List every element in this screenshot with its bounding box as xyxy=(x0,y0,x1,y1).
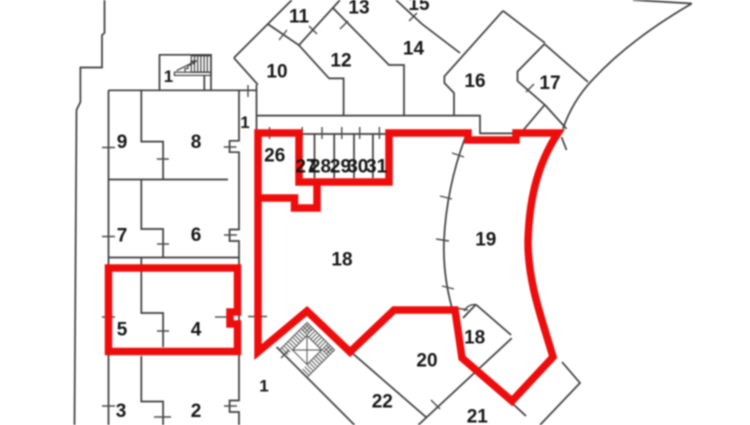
svg-text:26: 26 xyxy=(264,146,285,167)
svg-text:14: 14 xyxy=(403,39,425,60)
svg-text:8: 8 xyxy=(191,132,202,153)
svg-text:4: 4 xyxy=(191,320,202,341)
svg-text:20: 20 xyxy=(416,351,437,372)
svg-text:16: 16 xyxy=(464,71,485,92)
svg-text:1: 1 xyxy=(259,377,268,396)
svg-text:5: 5 xyxy=(117,320,128,341)
svg-text:1: 1 xyxy=(240,113,249,132)
svg-text:2: 2 xyxy=(191,401,202,422)
svg-text:12: 12 xyxy=(330,50,351,71)
svg-text:7: 7 xyxy=(117,226,128,247)
svg-text:9: 9 xyxy=(117,132,128,153)
svg-text:18: 18 xyxy=(331,250,352,271)
svg-text:10: 10 xyxy=(266,62,287,83)
svg-text:28: 28 xyxy=(310,157,331,178)
svg-text:13: 13 xyxy=(348,0,369,19)
svg-text:17: 17 xyxy=(539,73,560,94)
svg-text:6: 6 xyxy=(191,225,202,246)
svg-text:31: 31 xyxy=(366,157,388,178)
svg-text:21: 21 xyxy=(467,407,489,425)
svg-text:1: 1 xyxy=(164,67,173,86)
svg-text:15: 15 xyxy=(408,0,430,15)
svg-text:19: 19 xyxy=(475,230,496,251)
svg-text:22: 22 xyxy=(372,392,393,413)
svg-text:18: 18 xyxy=(464,328,485,349)
svg-text:3: 3 xyxy=(116,401,127,422)
svg-text:11: 11 xyxy=(289,7,310,28)
